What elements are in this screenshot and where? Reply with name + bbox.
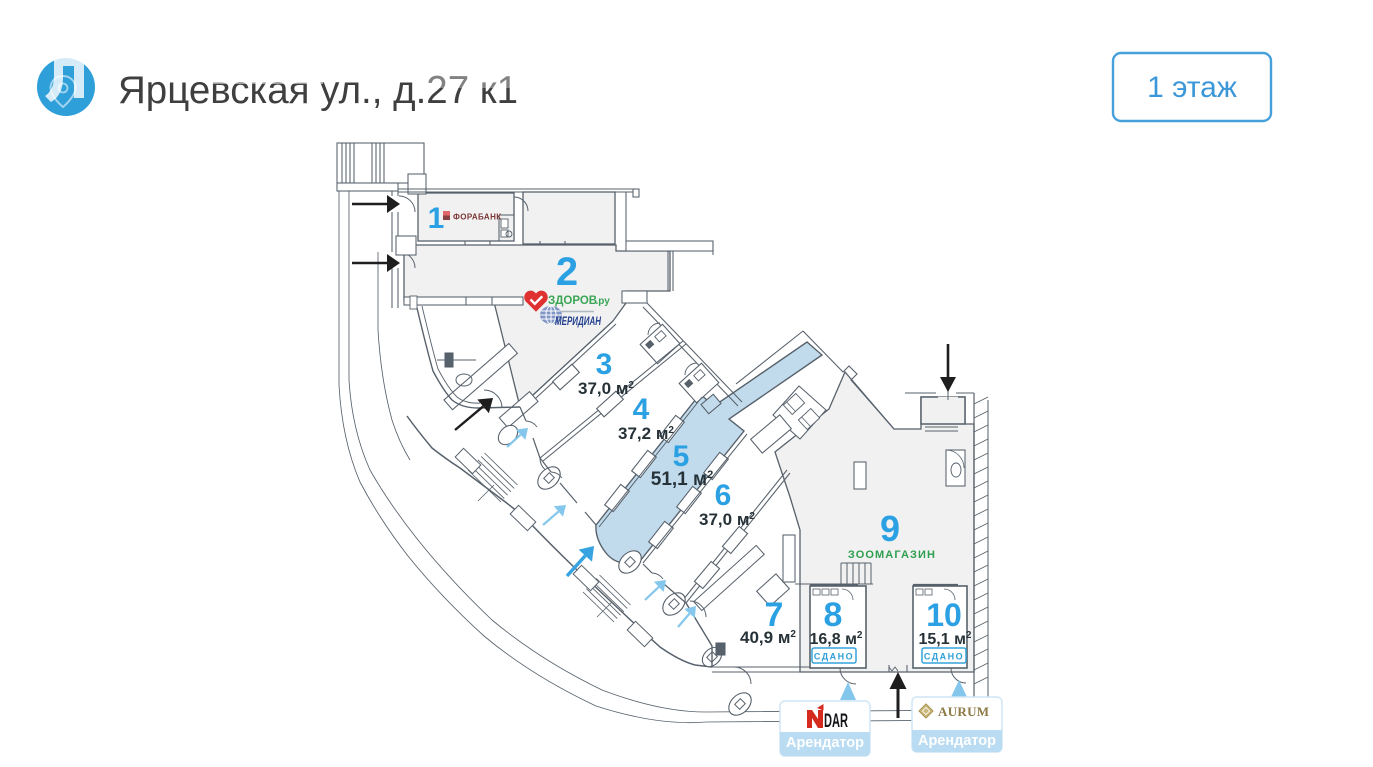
svg-text:8: 8: [824, 596, 843, 634]
svg-text:ЗДОРОВ: ЗДОРОВ: [548, 295, 597, 307]
svg-text:СДАНО: СДАНО: [814, 652, 854, 662]
svg-text:ЗООМАГАЗИН: ЗООМАГАЗИН: [848, 549, 936, 561]
svg-text:1: 1: [428, 202, 445, 235]
svg-text:37,0 м2: 37,0 м2: [699, 510, 755, 529]
svg-text:1 этаж: 1 этаж: [1147, 71, 1237, 104]
svg-text:СДАНО: СДАНО: [924, 652, 964, 662]
svg-text:37,2 м2: 37,2 м2: [618, 424, 674, 443]
svg-text:40,9 м2: 40,9 м2: [740, 628, 796, 647]
svg-text:DAR: DAR: [824, 711, 848, 732]
svg-text:15,1 м2: 15,1 м2: [919, 630, 972, 648]
svg-text:6: 6: [715, 479, 732, 512]
svg-text:10: 10: [926, 597, 962, 633]
svg-text:МЕРИДИАН: МЕРИДИАН: [555, 314, 601, 328]
svg-text:AURUM: AURUM: [938, 704, 989, 719]
svg-text:4: 4: [633, 393, 650, 426]
svg-text:37,0 м2: 37,0 м2: [578, 379, 634, 398]
svg-text:16,8 м2: 16,8 м2: [810, 630, 863, 648]
svg-text:Арендатор: Арендатор: [786, 735, 864, 751]
svg-text:.ру: .ру: [596, 296, 611, 307]
svg-text:Арендатор: Арендатор: [918, 733, 996, 749]
svg-text:2: 2: [556, 250, 578, 294]
svg-text:ФОРАБАНК: ФОРАБАНК: [453, 213, 502, 222]
svg-text:9: 9: [880, 508, 900, 549]
svg-text:51,1 м2: 51,1 м2: [651, 469, 713, 490]
svg-text:3: 3: [596, 348, 613, 381]
